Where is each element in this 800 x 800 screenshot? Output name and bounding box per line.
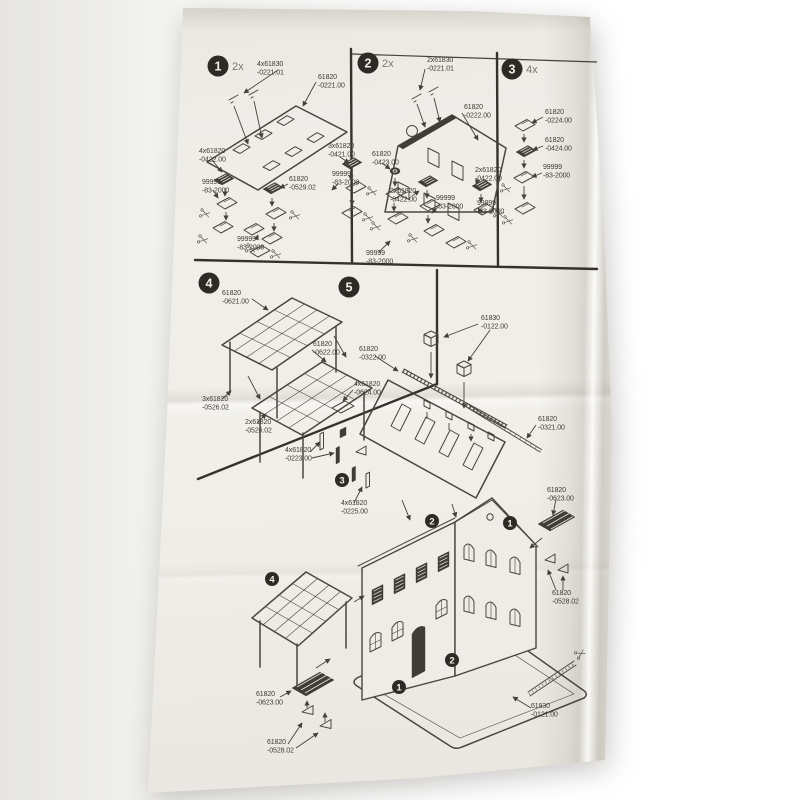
part-number-label: -0322.00 (359, 355, 386, 362)
part-number-label: -0526.02 (245, 428, 272, 435)
part-number-label: -0225.00 (341, 509, 368, 516)
part-number-label: 2x61820 (390, 188, 416, 195)
part-number-label: 99999 (366, 250, 385, 257)
step-3-diagram (500, 117, 543, 226)
part-number-label: 99999 (202, 179, 221, 186)
assembly-marker: 4 (265, 572, 279, 586)
assembly-marker: 2 (445, 653, 459, 667)
part-number-label: -0529.02 (289, 185, 316, 192)
part-number-label: -0223.00 (285, 456, 312, 463)
step-5-diagram (252, 324, 586, 748)
section-borders (195, 49, 597, 479)
part-number-label: -83-2000 (237, 245, 264, 252)
step-number: 2 (365, 56, 372, 70)
part-number-label: 99999 (436, 195, 455, 202)
step-number: 1 (215, 59, 222, 73)
part-number-label: 2x61820 (245, 419, 271, 426)
part-number-label: -0422.00 (475, 176, 502, 183)
part-number-label: 4x61820 (199, 148, 225, 155)
part-number-label: 61820 (547, 487, 566, 494)
part-number-label: -0224.00 (545, 118, 572, 125)
step-number: 4 (206, 276, 213, 290)
part-number-label: 2x61820 (475, 167, 501, 174)
step-4-annotations: 461820-0621.0061820-0622.003x61820-0526.… (199, 273, 341, 435)
part-number-label: -0222.00 (464, 113, 491, 120)
part-number-label: 4x61820 (285, 447, 311, 454)
part-number-label: -0423.00 (372, 160, 399, 167)
part-number-label: 61820 (256, 691, 275, 698)
part-number-label: 61820 (464, 104, 483, 111)
part-number-label: 61820 (313, 341, 332, 348)
part-number-label: 61820 (545, 137, 564, 144)
part-number-label: 3x61820 (328, 143, 354, 150)
assembly-marker: 1 (392, 680, 406, 694)
part-number-label: -0122.00 (481, 324, 508, 331)
part-number-label: 61820 (545, 109, 564, 116)
part-number-label: -83-2000 (332, 180, 359, 187)
assembly-marker: 1 (503, 516, 517, 530)
step-3-annotations: 34x61820-0224.0061820-0424.0099999-83-20… (502, 59, 573, 180)
assembly-marker: 3 (335, 473, 349, 487)
diagram-artwork: 12x4x61830-0221.0161820-0221.004x61820-0… (0, 0, 800, 800)
part-number-label: 61820 (538, 416, 557, 423)
part-number-label: -0622.00 (313, 350, 340, 357)
part-number-label: -0422.00 (199, 157, 226, 164)
part-number-label: 61820 (222, 290, 241, 297)
part-number-label: -0221.01 (257, 70, 284, 77)
part-number-label: -0421.00 (328, 152, 355, 159)
step-2-annotations: 22x2x61830-0221.0161820-0222.0061820-042… (358, 53, 505, 266)
step-quantity: 4x (526, 64, 538, 76)
assembly-marker-number: 3 (339, 475, 344, 486)
part-number-label: -0623.00 (256, 700, 283, 707)
part-number-label: 61820 (552, 590, 571, 597)
part-number-label: 61830 (531, 703, 550, 710)
part-number-label: -0623.00 (547, 496, 574, 503)
part-number-label: 61820 (359, 346, 378, 353)
part-number-label: -0422.00 (390, 197, 417, 204)
part-number-label: 4x61830 (257, 61, 283, 68)
part-number-label: -0624.00 (354, 390, 381, 397)
part-number-label: 61830 (481, 315, 500, 322)
part-number-label: 4x61820 (354, 381, 380, 388)
part-number-label: 61820 (318, 74, 337, 81)
part-number-label: -0528.02 (267, 748, 294, 755)
part-number-label: -83-2000 (366, 259, 393, 266)
step-quantity: 2x (232, 61, 244, 73)
assembly-marker-number: 1 (507, 518, 513, 529)
part-number-label: -0526.02 (202, 405, 229, 412)
part-number-label: 4x61820 (341, 500, 367, 507)
part-number-label: -83-2000 (202, 188, 229, 195)
photo-background: 12x4x61830-0221.0161820-0221.004x61820-0… (0, 0, 800, 800)
part-number-label: 61820 (267, 739, 286, 746)
step-number: 5 (346, 280, 353, 294)
assembly-marker-number: 2 (449, 655, 454, 666)
step-quantity: 2x (382, 58, 394, 70)
part-number-label: 61820 (289, 176, 308, 183)
assembly-marker-number: 4 (269, 574, 275, 585)
part-number-label: -0321.00 (538, 425, 565, 432)
part-number-label: -0121.00 (531, 712, 558, 719)
part-number-label: 3x61820 (202, 396, 228, 403)
assembly-marker-number: 2 (429, 516, 434, 527)
part-number-label: -0528.02 (552, 599, 579, 606)
part-number-label: -83-2000 (543, 173, 570, 180)
part-number-label: 2x61830 (427, 57, 453, 64)
step-number: 3 (509, 62, 516, 76)
part-number-label: 99999 (543, 164, 562, 171)
part-number-label: -83-2000 (477, 209, 504, 216)
part-number-label: -0621.00 (222, 299, 249, 306)
assembly-marker: 2 (425, 514, 439, 528)
part-number-label: -0424.00 (545, 146, 572, 153)
part-number-label: -0221.01 (427, 66, 454, 73)
part-number-label: 99999 (477, 200, 496, 207)
part-number-label: -83-2000 (436, 204, 463, 211)
part-number-label: 99999 (237, 236, 256, 243)
assembly-marker-number: 1 (396, 682, 402, 693)
part-number-label: -0221.00 (318, 83, 345, 90)
part-number-label: 99999 (332, 171, 351, 178)
part-number-label: 61820 (372, 151, 391, 158)
